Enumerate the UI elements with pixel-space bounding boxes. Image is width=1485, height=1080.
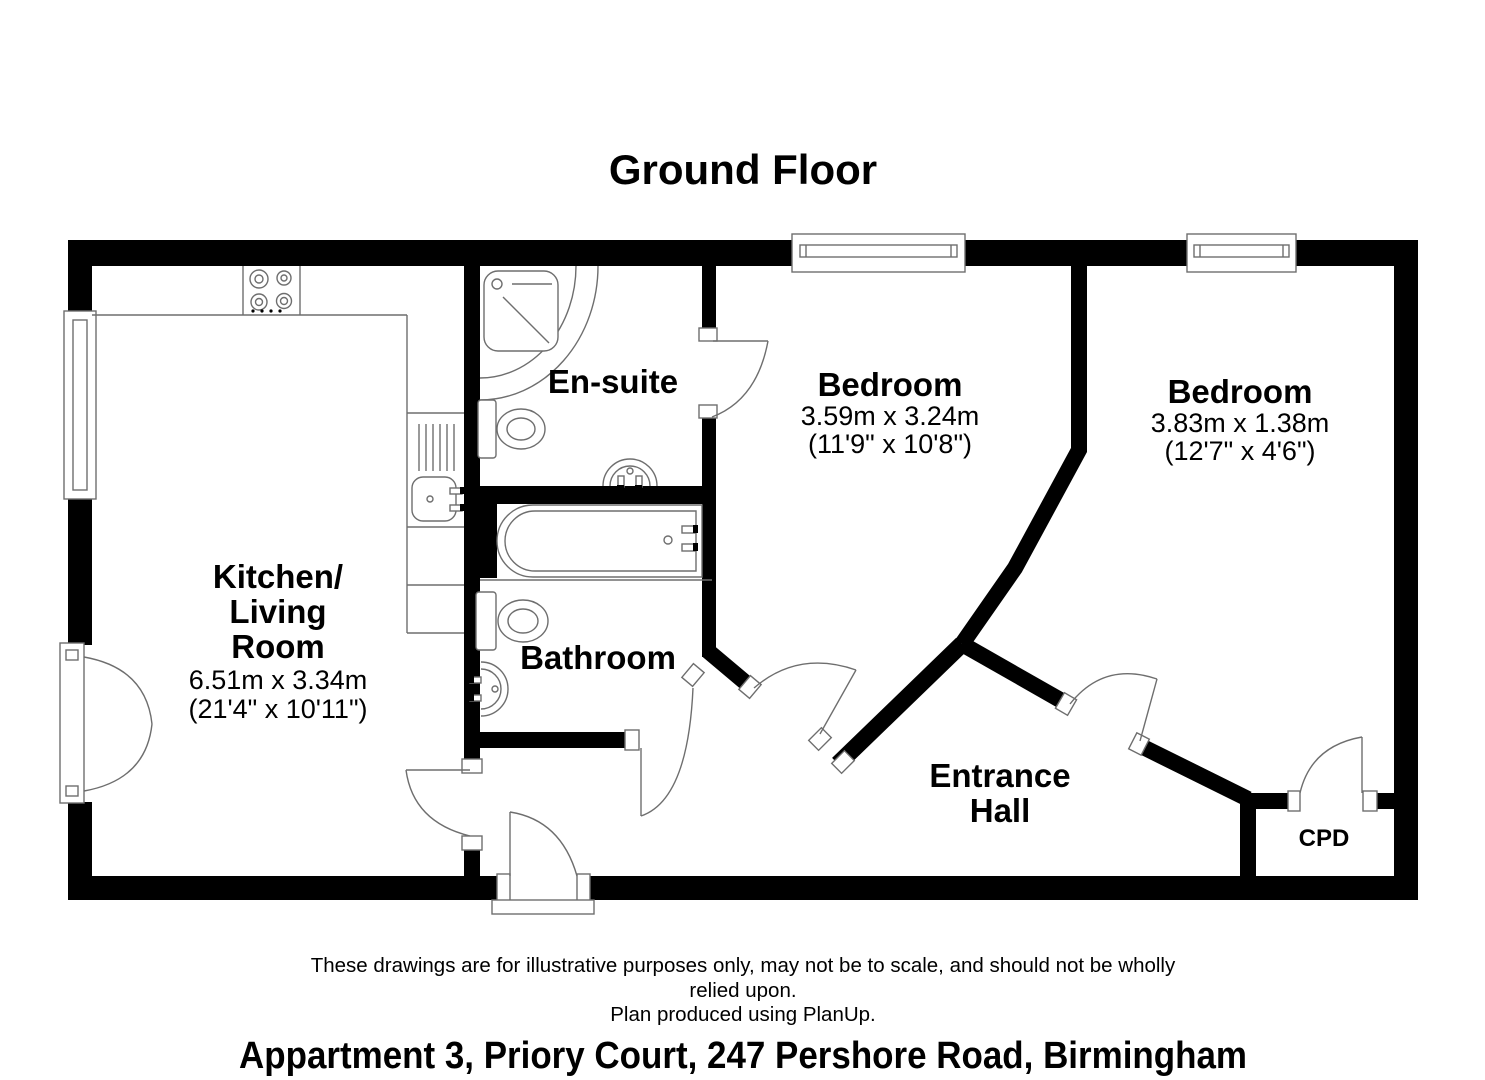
kitchen-window bbox=[64, 311, 96, 499]
bedroom2-door-arc bbox=[1070, 674, 1157, 741]
bedroom1-label: Bedroom bbox=[818, 366, 963, 403]
cpd-door-arc bbox=[1300, 737, 1362, 793]
kitchen-door-arc bbox=[406, 770, 470, 836]
kitchen-label-line2: Living bbox=[229, 593, 326, 630]
bedroom1-dim-imperial: (11'9" x 10'8") bbox=[808, 429, 972, 459]
floorplan-drawing: Ground Floor bbox=[0, 0, 1485, 1080]
bedroom1-dim-metric: 3.59m x 3.24m bbox=[801, 401, 980, 431]
ensuite-door-arc bbox=[712, 341, 768, 417]
bedroom2-label: Bedroom bbox=[1168, 373, 1313, 410]
disclaimer-line3: Plan produced using PlanUp. bbox=[610, 1003, 876, 1026]
disclaimer-line2: relied upon. bbox=[689, 979, 796, 1002]
ensuite-label: En-suite bbox=[548, 363, 678, 400]
disclaimer-text: These drawings are for illustrative purp… bbox=[311, 954, 1176, 1026]
bathtub-symbol bbox=[480, 505, 712, 580]
bedroom2-window bbox=[1187, 234, 1296, 272]
bathroom-door-arc bbox=[641, 688, 693, 816]
kitchen-dim-metric: 6.51m x 3.34m bbox=[189, 665, 368, 695]
bedroom1-door-arc bbox=[754, 663, 856, 734]
bedroom1-window bbox=[792, 234, 965, 272]
kitchen-label-line1: Kitchen/ bbox=[213, 558, 343, 595]
property-address: Appartment 3, Priory Court, 247 Pershore… bbox=[239, 1034, 1247, 1077]
windows bbox=[64, 234, 1296, 499]
hall-label-line1: Entrance bbox=[929, 757, 1070, 794]
french-doors bbox=[60, 643, 152, 803]
bedroom2-dim-metric: 3.83m x 1.38m bbox=[1151, 408, 1330, 438]
cpd-label: CPD bbox=[1299, 825, 1350, 852]
floorplan-page: Ground Floor bbox=[0, 0, 1485, 1080]
bedroom2-dim-imperial: (12'7" x 4'6") bbox=[1164, 436, 1315, 466]
bathroom-label: Bathroom bbox=[520, 639, 676, 676]
kitchen-sink-symbol bbox=[412, 424, 466, 521]
hob-symbol bbox=[243, 266, 300, 315]
hall-label-line2: Hall bbox=[970, 792, 1031, 829]
ensuite-toilet-symbol bbox=[478, 400, 545, 458]
kitchen-dim-imperial: (21'4" x 10'11") bbox=[188, 694, 367, 724]
kitchen-label-line3: Room bbox=[231, 628, 325, 665]
front-door-arc bbox=[510, 812, 577, 876]
disclaimer-line1: These drawings are for illustrative purp… bbox=[311, 954, 1176, 977]
front-door-step bbox=[492, 900, 594, 914]
room-labels: Kitchen/ Living Room 6.51m x 3.34m (21'4… bbox=[188, 363, 1349, 852]
floor-title: Ground Floor bbox=[609, 146, 877, 193]
